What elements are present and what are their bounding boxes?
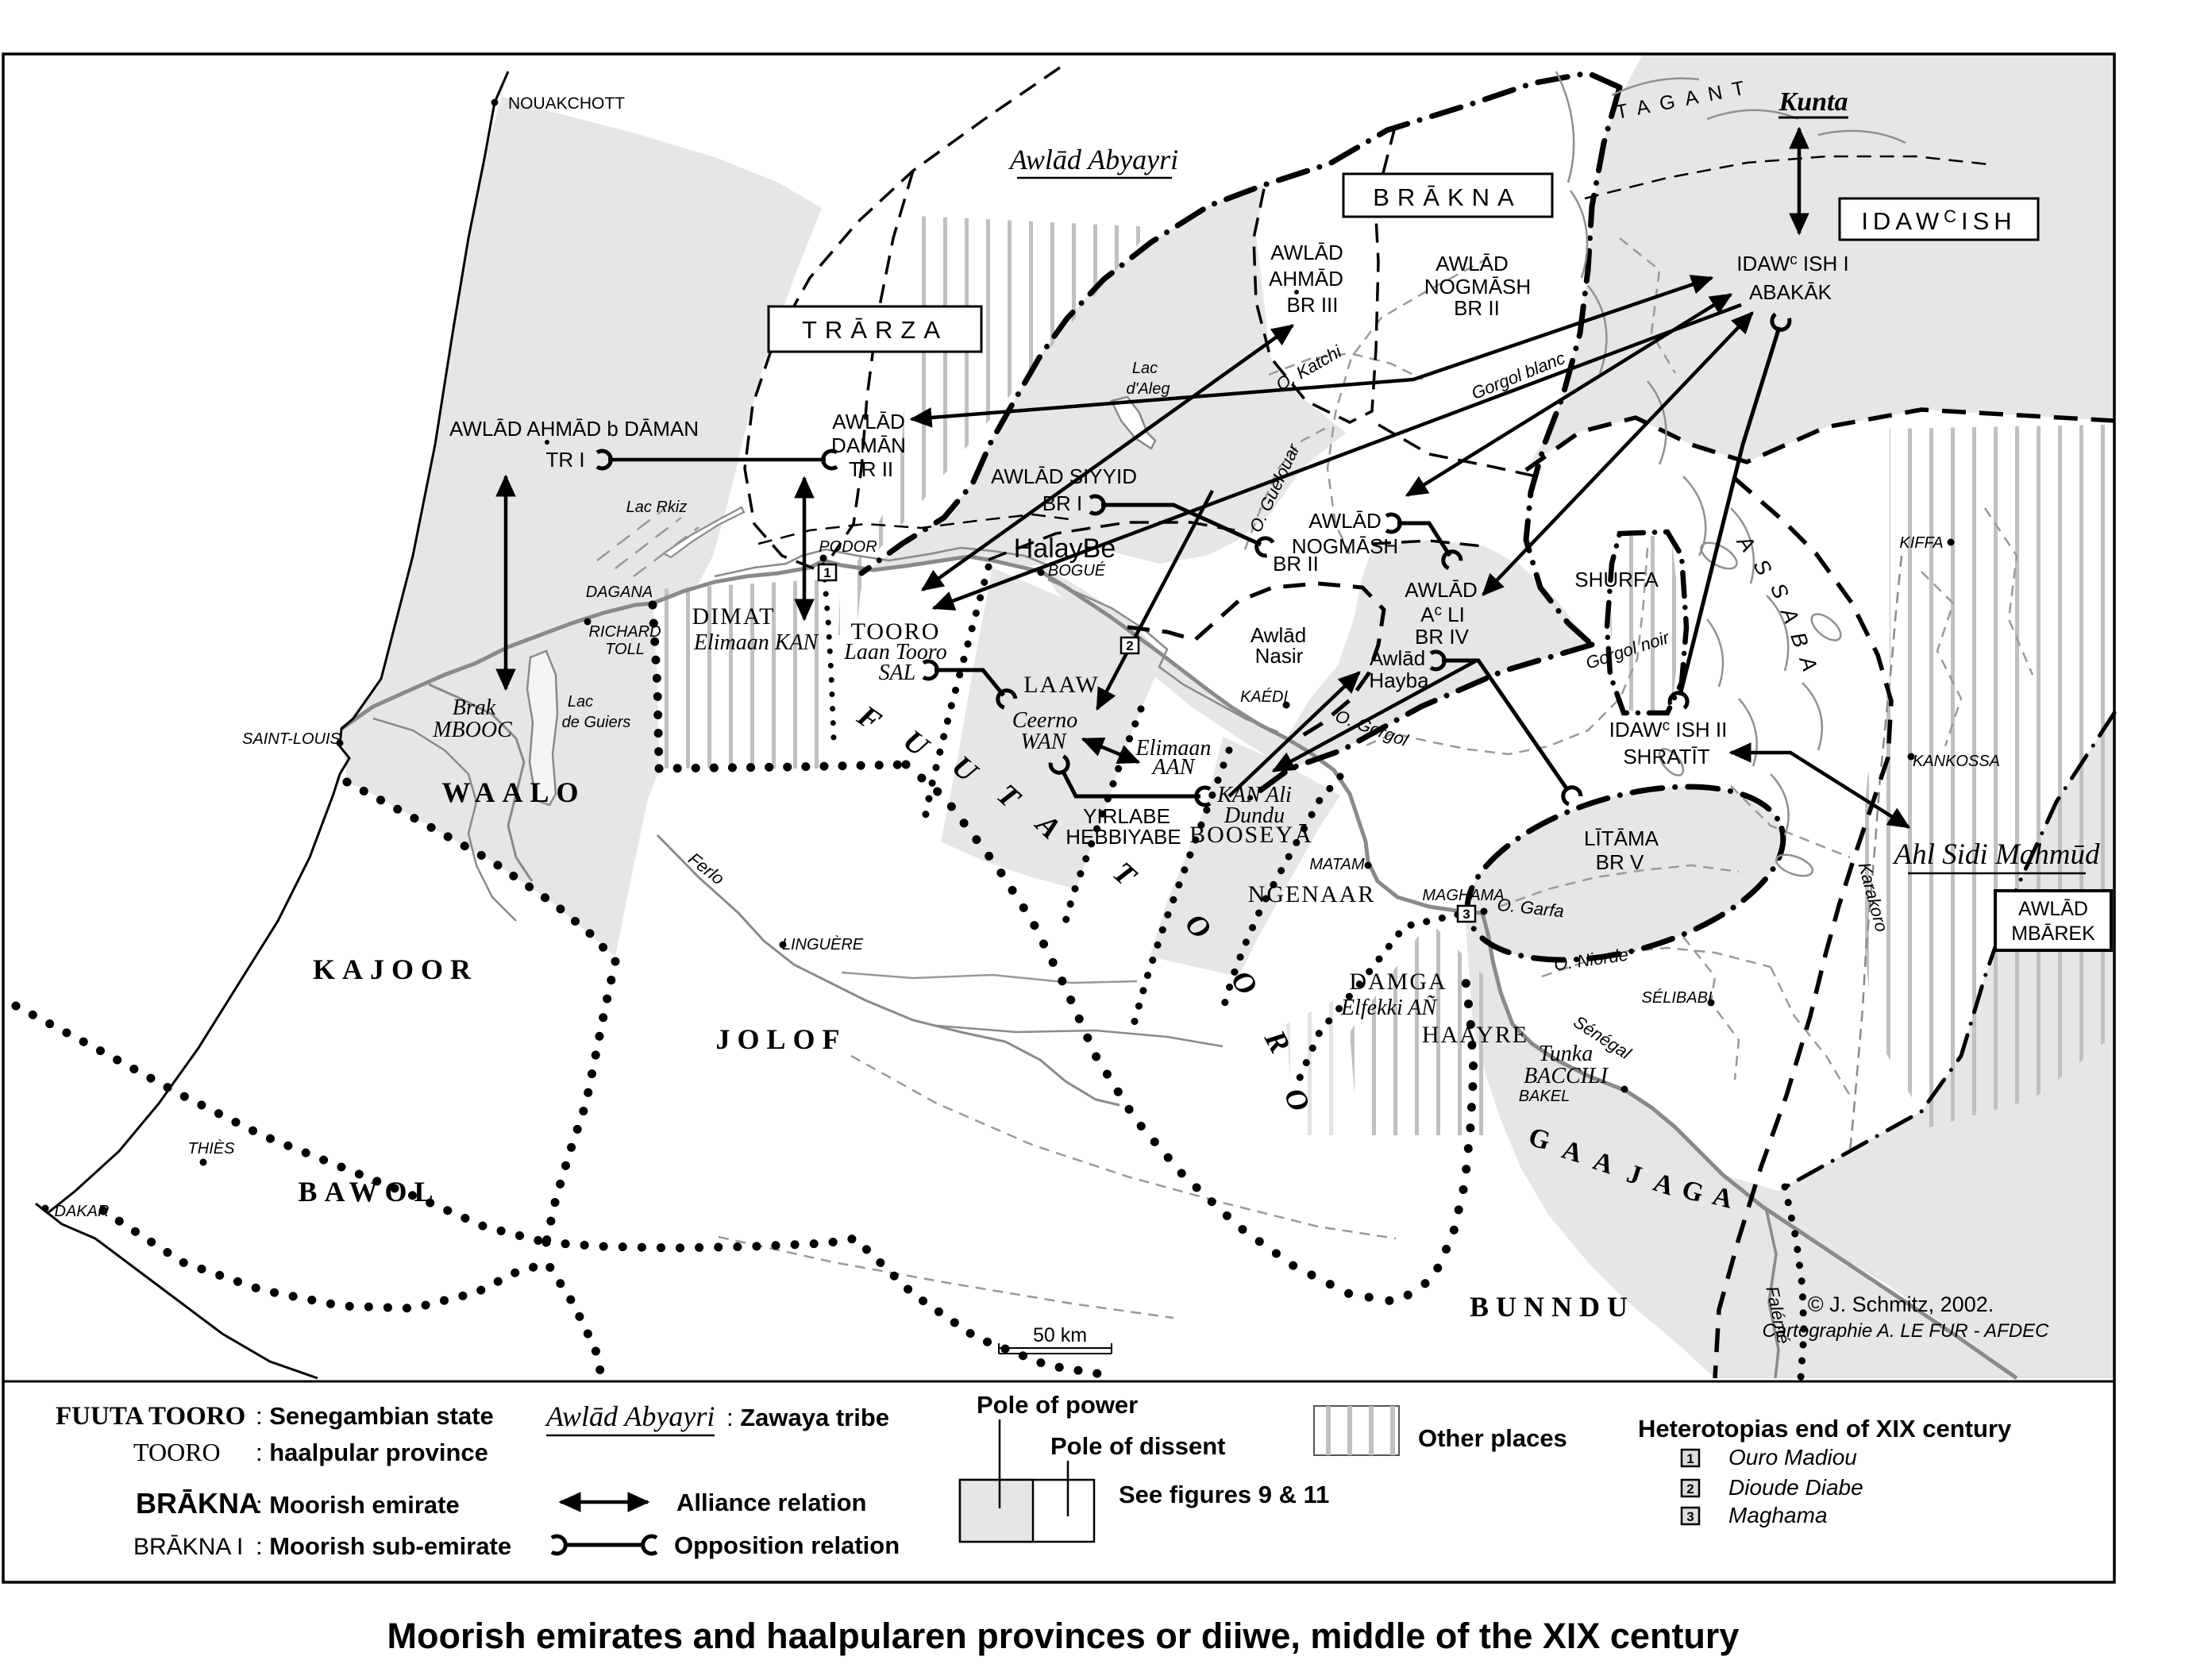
svg-text:Brak: Brak (453, 695, 496, 720)
svg-text:KANKOSSA: KANKOSSA (1913, 753, 2000, 770)
svg-text:HAAYRE: HAAYRE (1422, 1022, 1528, 1048)
svg-text:MAGHAMA: MAGHAMA (1422, 887, 1504, 904)
svg-text:BRĀKNA I: BRĀKNA I (133, 1534, 243, 1560)
svg-text:NOGMĀSH: NOGMĀSH (1424, 275, 1531, 299)
svg-text:SÉLIBABI: SÉLIBABI (1642, 988, 1713, 1007)
svg-text:Pole of dissent: Pole of dissent (1050, 1432, 1225, 1460)
svg-text:FUUTA TOORO: FUUTA TOORO (56, 1402, 245, 1431)
svg-text:SHRATĪT: SHRATĪT (1623, 745, 1709, 768)
svg-text:DAGANA: DAGANA (586, 584, 653, 601)
svg-text:DAMGA: DAMGA (1349, 969, 1447, 995)
svg-text:BR I: BR I (1042, 491, 1083, 515)
svg-text:BRĀKNA: BRĀKNA (1373, 183, 1521, 211)
svg-text:3: 3 (1686, 1509, 1694, 1524)
svg-text:HalayBe: HalayBe (1014, 533, 1116, 564)
svg-text:BR IV: BR IV (1415, 625, 1470, 649)
svg-text:LAAW: LAAW (1023, 672, 1100, 698)
svg-text:BAWOL: BAWOL (298, 1176, 440, 1208)
svg-text:: Moorish sub-emirate: : Moorish sub-emirate (256, 1532, 511, 1560)
svg-text:NGENAAR: NGENAAR (1248, 881, 1376, 907)
svg-text:Maghama: Maghama (1728, 1503, 1828, 1527)
svg-text:AWLĀD: AWLĀD (1405, 578, 1478, 602)
svg-text:Lac Rkiz: Lac Rkiz (626, 499, 688, 516)
svg-text:AHMĀD: AHMĀD (1269, 267, 1343, 291)
svg-text:BR V: BR V (1596, 850, 1644, 874)
svg-text:Ouro Madiou: Ouro Madiou (1728, 1445, 1857, 1469)
svg-text:TR II: TR II (849, 457, 893, 481)
svg-text:Elfekki AÑ: Elfekki AÑ (1340, 996, 1437, 1020)
svg-text:BRĀKNA: BRĀKNA (136, 1487, 260, 1520)
svg-text:: Zawaya tribe: : Zawaya tribe (726, 1404, 889, 1431)
svg-text:SAL: SAL (879, 661, 916, 685)
svg-text:BACCILI: BACCILI (1524, 1064, 1609, 1088)
svg-text:Awlād Abyayri: Awlād Abyayri (545, 1400, 715, 1432)
svg-text:MBĀREK: MBĀREK (2011, 923, 2095, 945)
svg-text:Kunta: Kunta (1778, 87, 1848, 117)
svg-text:TRĀRZA: TRĀRZA (802, 316, 948, 344)
svg-text:TOORO: TOORO (133, 1438, 221, 1466)
svg-text:AWLĀD: AWLĀD (1270, 241, 1343, 264)
svg-text:BAKEL: BAKEL (1519, 1088, 1570, 1105)
svg-text:50 km: 50 km (1033, 1324, 1087, 1346)
svg-text:Other places: Other places (1418, 1424, 1567, 1452)
svg-text:BOOSEYĀ: BOOSEYĀ (1189, 822, 1313, 848)
svg-text:Ac LI: Ac LI (1420, 603, 1465, 626)
svg-text:JOLOF: JOLOF (715, 1023, 846, 1055)
svg-text:SHURFA: SHURFA (1574, 568, 1659, 591)
svg-text:MBOOC: MBOOC (432, 718, 512, 742)
svg-text:BOGUÉ: BOGUÉ (1048, 561, 1106, 580)
svg-text:NOUAKCHOTT: NOUAKCHOTT (508, 94, 625, 113)
svg-text:IDAWCISH: IDAWCISH (1861, 206, 2016, 235)
svg-text:Lac: Lac (568, 693, 593, 711)
svg-text:Nasir: Nasir (1255, 644, 1304, 668)
svg-text:AWLĀD: AWLĀD (2018, 898, 2088, 920)
svg-text:BUNNDU: BUNNDU (1470, 1291, 1635, 1323)
svg-text:MATAM: MATAM (1309, 856, 1365, 873)
svg-text:Elimaan KAN: Elimaan KAN (693, 630, 819, 655)
svg-text:WAALO: WAALO (441, 776, 585, 808)
svg-text:BR II: BR II (1454, 296, 1500, 320)
svg-text:2: 2 (1686, 1481, 1694, 1496)
svg-text:BR III: BR III (1286, 293, 1338, 317)
svg-text:Awlād: Awlād (1370, 646, 1425, 670)
svg-text:DAMĀN: DAMĀN (831, 433, 906, 457)
svg-text:Awlād Abyayri: Awlād Abyayri (1008, 144, 1178, 175)
svg-text:Heterotopias end of XIX centur: Heterotopias end of XIX century (1638, 1415, 2012, 1443)
svg-text:AWLĀD SIYYID: AWLĀD SIYYID (991, 464, 1137, 488)
svg-text:© J. Schmitz, 2002.: © J. Schmitz, 2002. (1808, 1292, 1994, 1316)
svg-text:de Guiers: de Guiers (562, 714, 631, 731)
svg-text:Dioude Diabe: Dioude Diabe (1728, 1475, 1863, 1500)
svg-text:Hayba: Hayba (1369, 668, 1429, 692)
svg-text:KAJOOR: KAJOOR (313, 953, 478, 985)
svg-text:KIFFA: KIFFA (1899, 534, 1943, 552)
svg-text:AWLĀD AHMĀD b DĀMAN: AWLĀD AHMĀD b DĀMAN (449, 417, 699, 441)
svg-text:Tunka: Tunka (1539, 1042, 1593, 1066)
svg-text:Cartographie A. LE FUR - AFDEC: Cartographie A. LE FUR - AFDEC (1763, 1320, 2050, 1342)
svg-text:d'Aleg: d'Aleg (1127, 380, 1170, 398)
svg-text:PODOR: PODOR (819, 538, 877, 556)
svg-text:ABAKĀK: ABAKĀK (1749, 280, 1832, 304)
svg-text:THIÈS: THIÈS (188, 1139, 236, 1157)
svg-text:Lac: Lac (1132, 360, 1158, 377)
svg-text:DIMAT: DIMAT (692, 603, 776, 630)
svg-text:HEBBIYABE: HEBBIYABE (1066, 825, 1181, 849)
svg-text:AWLĀD: AWLĀD (1308, 509, 1382, 533)
svg-text:KAÉDI: KAÉDI (1240, 688, 1288, 706)
svg-text:1: 1 (823, 565, 830, 580)
svg-text:TR I: TR I (545, 448, 584, 472)
svg-text:Moorish emirates and haalpular: Moorish emirates and haalpularen provinc… (387, 1616, 1740, 1656)
svg-text:AWLĀD: AWLĀD (832, 410, 905, 433)
svg-text:TOLL: TOLL (605, 641, 645, 658)
svg-text:1: 1 (1686, 1451, 1694, 1466)
svg-text:: Moorish emirate: : Moorish emirate (256, 1491, 460, 1519)
svg-text:LINGUÈRE: LINGUÈRE (782, 935, 864, 953)
svg-text:BR II: BR II (1273, 552, 1319, 576)
svg-text:Pole of power: Pole of power (977, 1391, 1138, 1419)
svg-text:DAKAR: DAKAR (55, 1203, 110, 1220)
svg-text:Ahl Sidi Mahmūd: Ahl Sidi Mahmūd (1892, 838, 2100, 871)
svg-text:See figures 9 & 11: See figures 9 & 11 (1119, 1481, 1329, 1508)
svg-text:3: 3 (1462, 907, 1470, 922)
svg-text:: haalpular province: : haalpular province (256, 1439, 488, 1466)
svg-text:AAN: AAN (1151, 755, 1196, 780)
svg-text:Opposition relation: Opposition relation (674, 1531, 900, 1559)
svg-text:LĪTĀMA: LĪTĀMA (1584, 826, 1659, 850)
svg-text:SAINT-LOUIS: SAINT-LOUIS (242, 730, 341, 748)
svg-text:: Senegambian state: : Senegambian state (256, 1402, 494, 1430)
svg-text:AWLĀD: AWLĀD (1435, 252, 1509, 275)
svg-text:2: 2 (1126, 638, 1133, 653)
svg-text:WAN: WAN (1020, 730, 1066, 754)
svg-text:Alliance relation: Alliance relation (676, 1489, 866, 1516)
svg-text:RICHARD: RICHARD (588, 623, 661, 641)
